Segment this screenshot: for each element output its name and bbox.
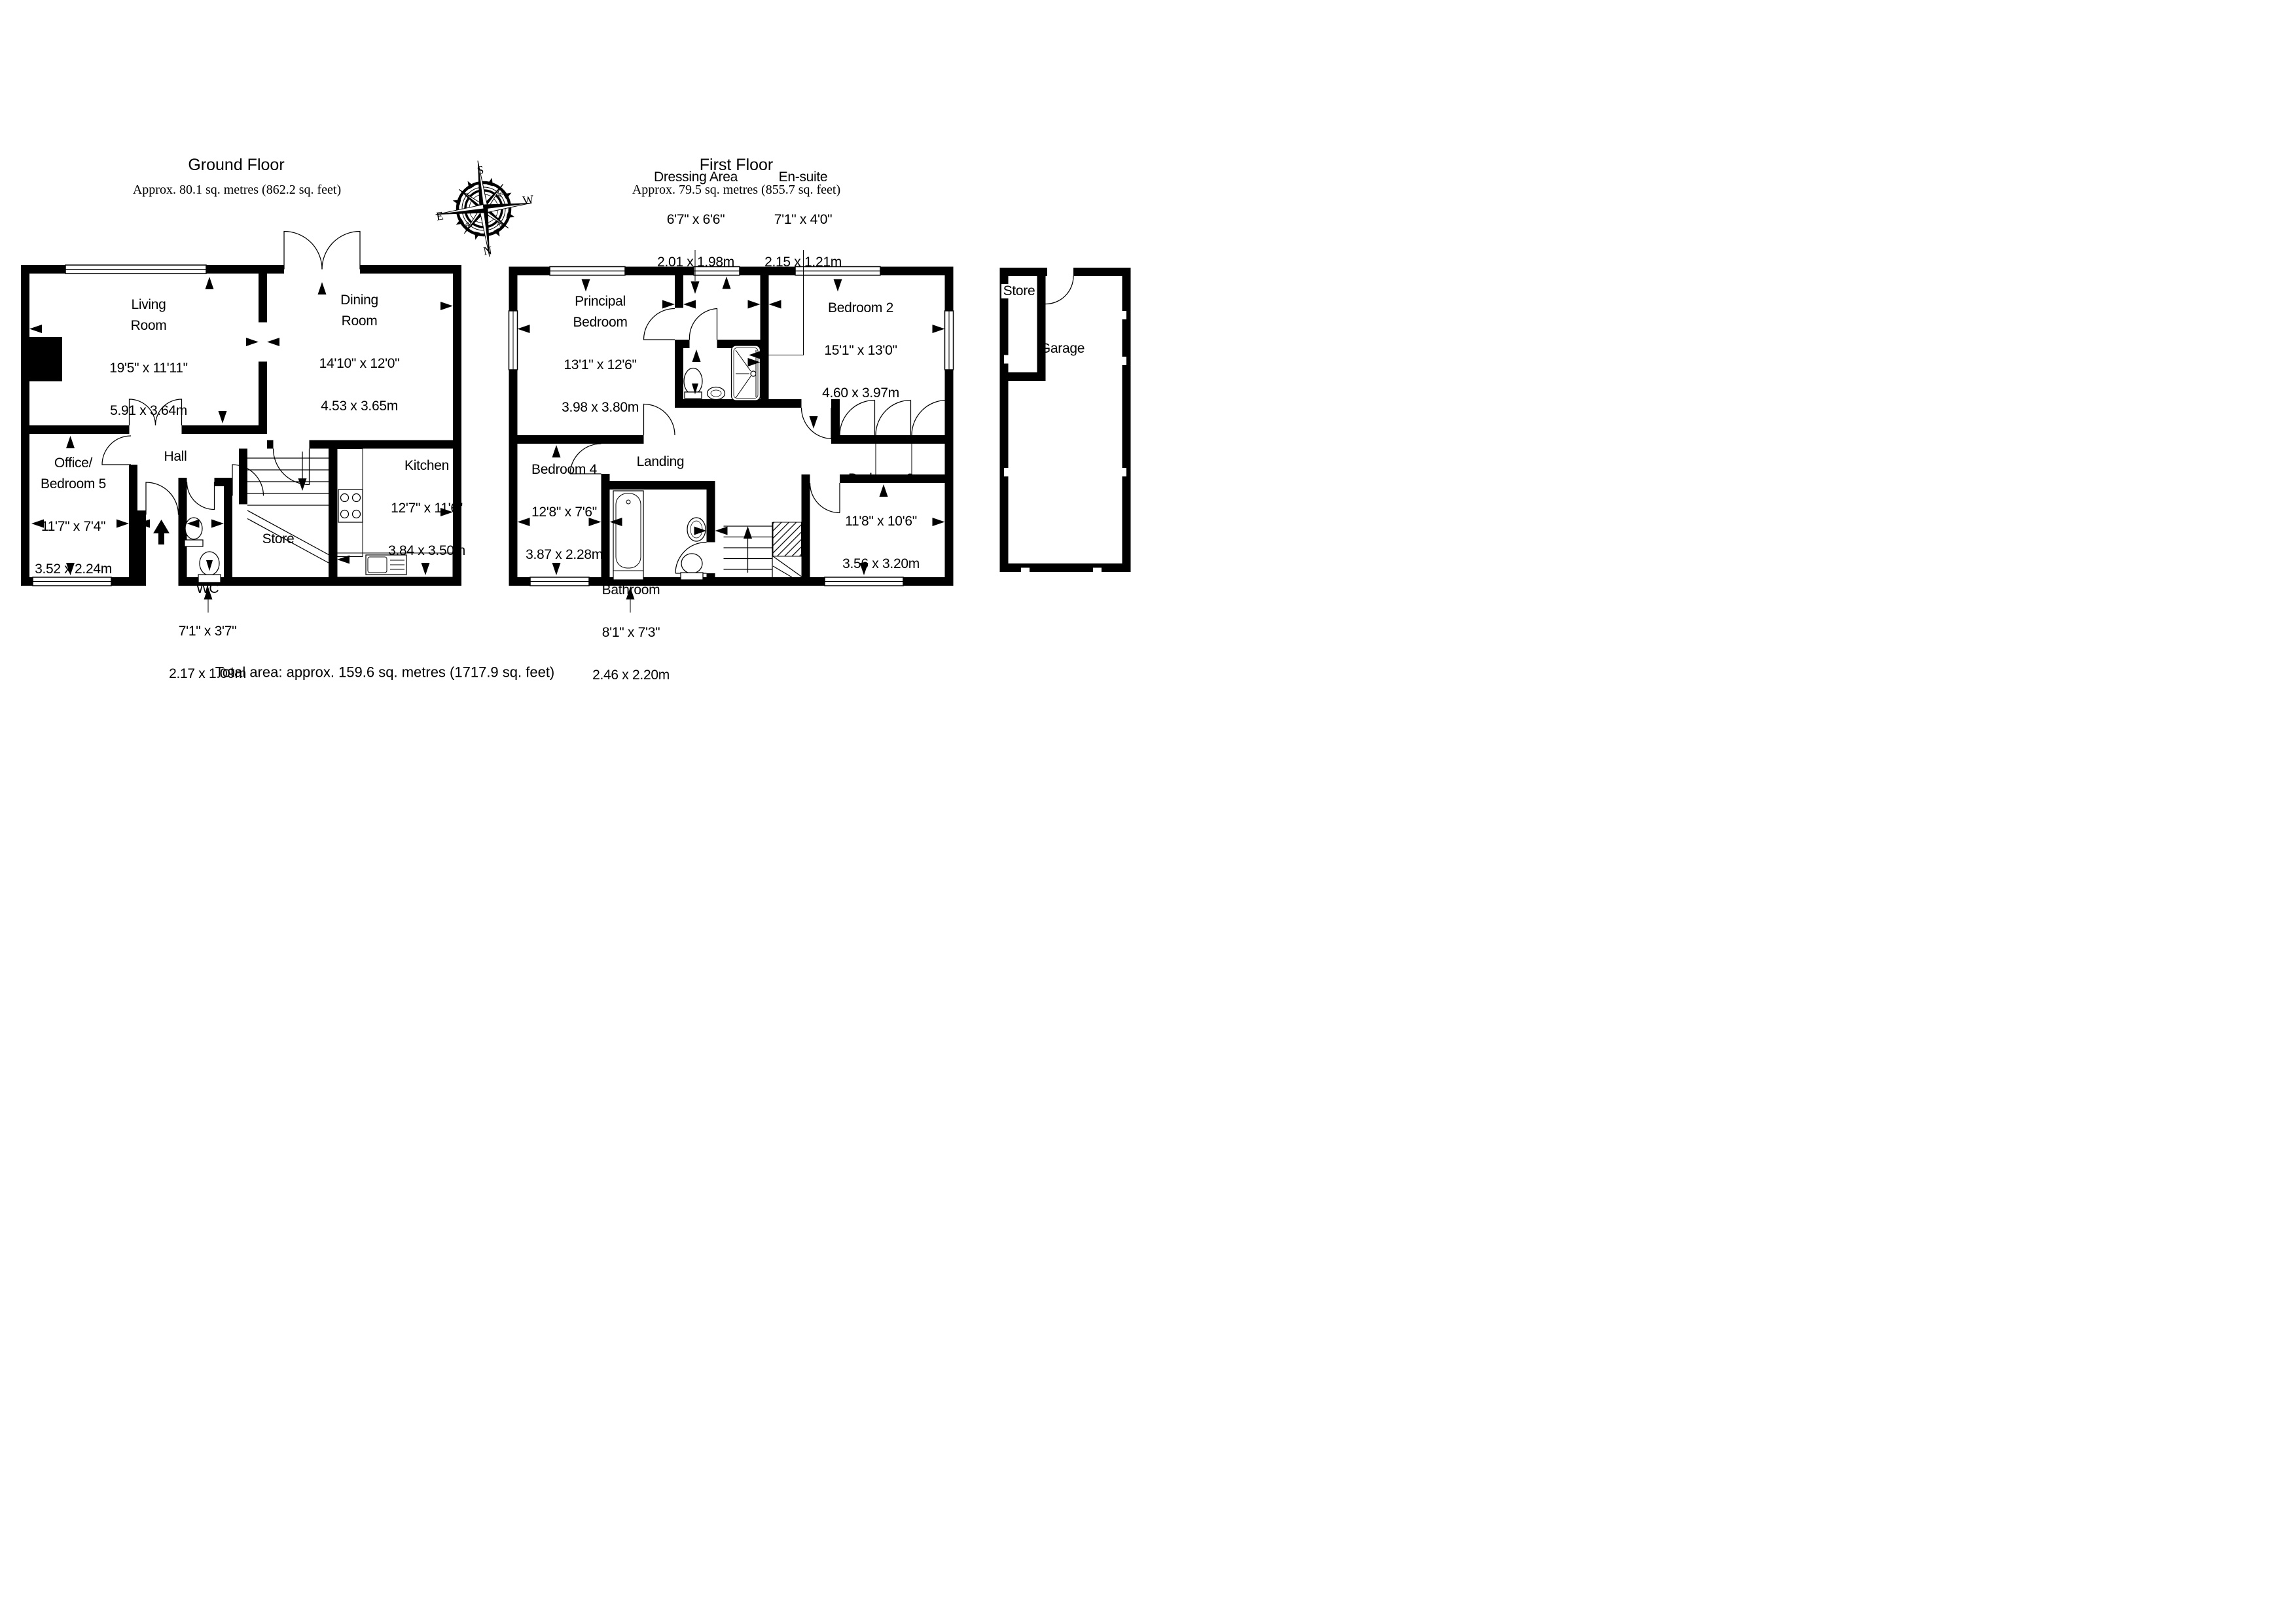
patio-door-left <box>284 232 322 270</box>
store-door <box>232 465 264 496</box>
room-label-living: Living Room 19'5" x 11'11" 5.91 x 3.64m <box>109 273 188 443</box>
bathroom-toilet-tank <box>681 573 703 580</box>
room-label-principal: Principal Bedroom 13'1" x 12'6" 3.98 x 3… <box>562 270 639 440</box>
ensuite-toilet-icon <box>684 368 702 395</box>
compass-label-w: W <box>522 192 535 207</box>
wc-basin-pedestal <box>185 540 203 546</box>
chimney-breast <box>21 337 62 382</box>
room-label-ensuite: En-suite 7'1" x 4'0" 2.15 x 1.21m <box>764 145 842 294</box>
room-label-landing: Landing <box>637 437 685 487</box>
room-label-dressing: Dressing Area 6'7" x 6'6" 2.01 x 1.98m <box>654 145 738 294</box>
compass-label-e: E <box>435 209 444 223</box>
room-label-hall: Hall <box>164 432 187 482</box>
room-label-bedroom2: Bedroom 2 15'1" x 13'0" 4.60 x 3.97m <box>822 276 899 425</box>
stairs-first <box>724 522 802 577</box>
room-label-dining: Dining Room 14'10" x 12'0" 4.53 x 3.65m <box>319 268 400 438</box>
total-area-text: Total area: approx. 159.6 sq. metres (17… <box>215 648 555 698</box>
wardrobe-door-3 <box>912 401 947 436</box>
room-label-bedroom4: Bedroom 4 12'8" x 7'6" 3.87 x 2.28m <box>526 438 603 587</box>
entrance-arrow <box>153 520 170 544</box>
bathroom-toilet-icon <box>681 554 702 573</box>
ground-floor-subtitle: Approx. 80.1 sq. metres (862.2 sq. feet) <box>133 158 341 221</box>
room-label-office: Office/ Bedroom 5 11'7" x 7'4" 3.52 x 2.… <box>35 431 112 601</box>
dressing-opening-door <box>644 309 675 340</box>
compass-rose: S W N E se sw nw ne <box>430 155 538 263</box>
ensuite-basin-icon <box>708 387 725 400</box>
floorplan-page: S W N E se sw nw ne Ground Floor Approx.… <box>0 0 1148 811</box>
ensuite-toilet-tank <box>685 392 702 399</box>
principal-door <box>644 404 675 436</box>
bedroom3-door <box>810 483 840 513</box>
wc-door <box>187 482 215 510</box>
compass-label-s: S <box>476 163 485 177</box>
room-label-garage-store: Store <box>1003 266 1035 316</box>
compass-label-n: N <box>482 243 493 258</box>
room-label-store-ground: Store <box>262 514 295 564</box>
wc-basin-icon <box>185 518 202 539</box>
garage-store-door <box>1046 276 1074 304</box>
room-label-kitchen: Kitchen 12'7" x 11'6" 3.84 x 3.50m <box>388 434 465 583</box>
stairs-up-arrow <box>744 526 752 539</box>
room-label-bathroom: Bathroom 8'1" x 7'3" 2.46 x 2.20m <box>592 558 670 707</box>
leader-lines <box>208 250 804 613</box>
entrance-door <box>146 482 179 515</box>
room-label-bedroom3: Bedroom 3 11'8" x 10'6" 3.56 x 3.20m <box>842 447 920 596</box>
room-label-garage: Garage <box>1040 324 1085 374</box>
ensuite-door <box>689 309 717 340</box>
patio-door-right <box>322 232 360 270</box>
